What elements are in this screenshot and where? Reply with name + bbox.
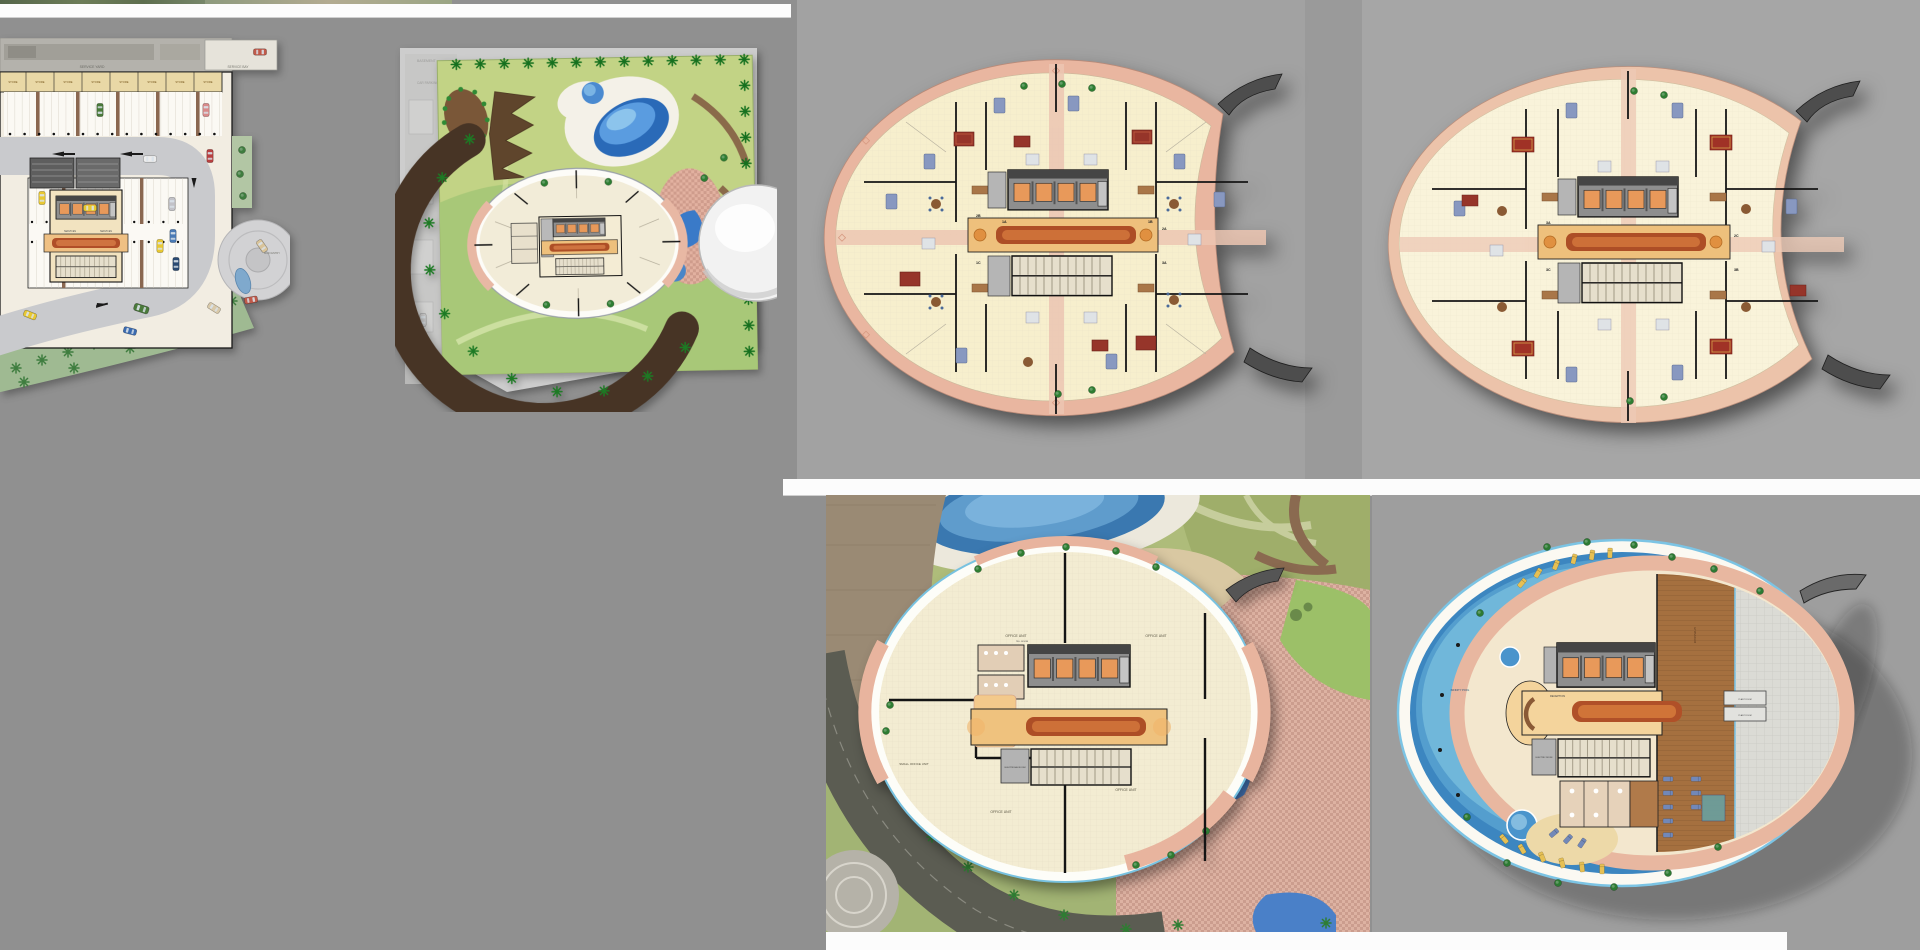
tel-room-label: TEL. ROOM <box>1016 641 1028 643</box>
row-gap-top <box>0 4 791 18</box>
row-gap-bottom <box>826 932 1787 950</box>
svg-text:3A: 3A <box>1162 261 1167 265</box>
plan-collage-page: SERVICE YARD SERVICE BAY STORE STORE STO… <box>0 0 1920 950</box>
svg-text:STORE: STORE <box>203 80 212 84</box>
reception-label: RECEPTION <box>1550 694 1565 698</box>
svg-text:STORE: STORE <box>147 80 156 84</box>
service-bay-label: SERVICE BAY <box>228 65 250 69</box>
svg-text:CAR PARKING: CAR PARKING <box>417 81 439 85</box>
svg-text:3C: 3C <box>1546 268 1551 272</box>
club-plan-image[interactable]: RECEPTION ELECTRIC ROOM PLANT ROOM PLANT… <box>1372 495 1920 932</box>
svg-text:STORE: STORE <box>35 80 44 84</box>
svg-text:OFFICE UNIT: OFFICE UNIT <box>990 810 1011 814</box>
electrical-room-label: ELECTRICAL ROOM <box>1005 766 1026 769</box>
office-canopy-icon <box>1226 568 1284 602</box>
svg-text:STORE: STORE <box>119 80 128 84</box>
svg-text:STORE: STORE <box>63 80 72 84</box>
typical-floor-a-image[interactable]: 2B 1C 1A 1B 2A 3A <box>806 42 1321 432</box>
svg-text:OFFICE UNIT: OFFICE UNIT <box>1005 634 1026 638</box>
canopy-top-icon <box>1218 74 1282 115</box>
plant-room-label-2: PLANT ROOM <box>1738 714 1752 717</box>
electric-room-label: ELECTRIC ROOM <box>1536 757 1553 759</box>
canopy-bottom-icon <box>1244 348 1312 382</box>
svg-text:1C: 1C <box>976 261 981 265</box>
typical-floor-b-art: 3A 3C 2C 3B <box>1388 67 1890 423</box>
main-entry-label: MAIN ENTRY <box>264 251 280 255</box>
svg-text:SMALL OFFICE UNIT: SMALL OFFICE UNIT <box>899 762 929 766</box>
office-floor-art: ELECTRICAL ROOM TEL. ROOM OFFICE UNIT OF… <box>865 541 1284 882</box>
svg-text:OFFICE UNIT: OFFICE UNIT <box>1115 788 1136 792</box>
svg-text:STORE: STORE <box>8 80 17 84</box>
ground-plan-image[interactable]: BASEMENT CAR PARKING <box>395 40 777 412</box>
svg-text:3A: 3A <box>1546 221 1551 225</box>
parking-plan-art: SERVICE YARD SERVICE BAY STORE STORE STO… <box>0 38 290 394</box>
svg-text:STORE: STORE <box>91 80 100 84</box>
svg-text:OFFICE UNIT: OFFICE UNIT <box>1145 634 1166 638</box>
svg-text:1B: 1B <box>1148 220 1153 224</box>
typical-floor-b-image[interactable]: 3A 3C 2C 3B <box>1366 45 1906 437</box>
row-gap-middle <box>783 479 1920 496</box>
typical-floor-a-art: 2B 1C 1A 1B 2A 3A <box>824 60 1312 416</box>
svg-text:SERVICES: SERVICES <box>100 230 112 233</box>
svg-text:2C: 2C <box>1734 234 1739 238</box>
service-yard-label: SERVICE YARD <box>80 65 105 69</box>
plant-room-label-1: PLANT ROOM <box>1738 698 1752 701</box>
canopy-top-icon-b <box>1796 81 1860 122</box>
svg-text:2B: 2B <box>976 214 981 218</box>
svg-text:STORE: STORE <box>175 80 184 84</box>
ground-plan-art: BASEMENT CAR PARKING <box>395 48 777 412</box>
svg-text:BASEMENT: BASEMENT <box>417 59 436 63</box>
infinity-pool-label: INFINITY POOL <box>1451 688 1470 692</box>
office-plan-image[interactable]: ELECTRICAL ROOM TEL. ROOM OFFICE UNIT OF… <box>826 495 1370 932</box>
gymnasium-label: GYMNASIUM <box>1693 627 1697 643</box>
parking-plan-image[interactable]: SERVICE YARD SERVICE BAY STORE STORE STO… <box>0 38 290 410</box>
club-canopy-icon <box>1800 574 1866 603</box>
svg-text:2A: 2A <box>1162 227 1167 231</box>
svg-text:SERVICES: SERVICES <box>64 230 76 233</box>
svg-text:3B: 3B <box>1734 268 1739 272</box>
svg-text:1A: 1A <box>1002 220 1007 224</box>
canopy-bottom-icon-b <box>1822 355 1890 389</box>
parking-core: SERVICES SERVICES <box>44 190 128 282</box>
